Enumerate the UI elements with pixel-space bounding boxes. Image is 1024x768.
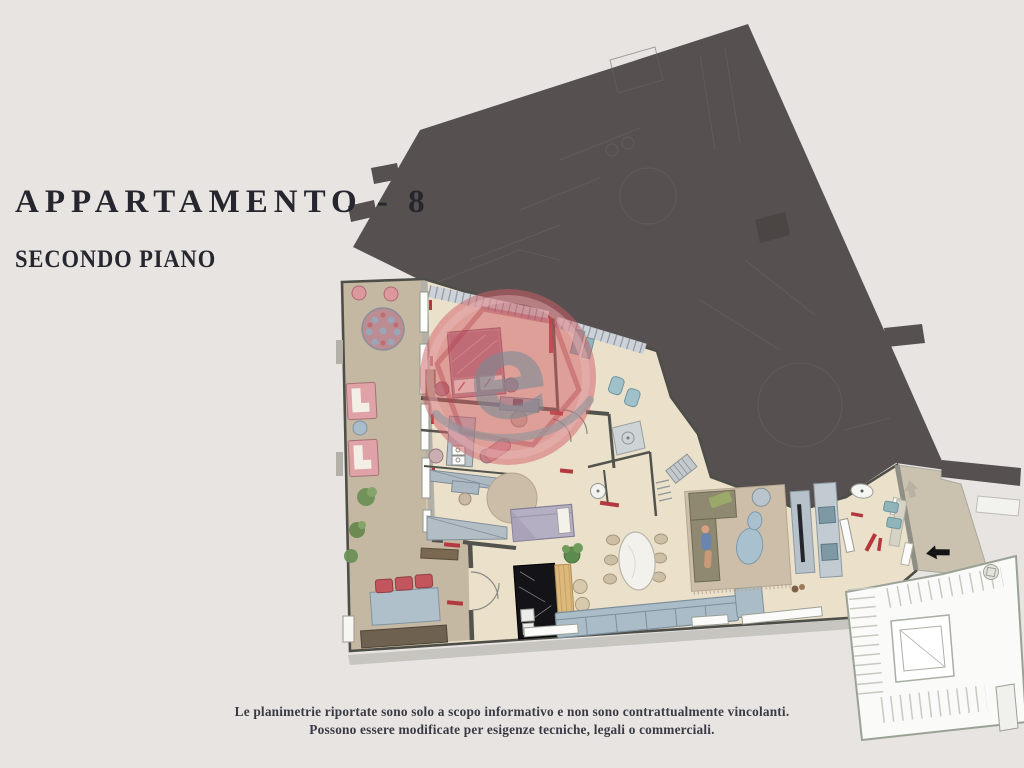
wall-pier — [336, 340, 343, 364]
plan-subtitle: SECONDO PIANO — [15, 246, 216, 274]
floor-plan-drawing: e — [0, 0, 1024, 768]
disclaimer-line-2: Possono essere modificate per esigenze t… — [0, 721, 1024, 739]
red-chair — [375, 579, 393, 593]
side-table — [353, 421, 367, 435]
pet-bowl — [792, 586, 799, 593]
floor-plan-page: APPARTAMENTO - 8 SECONDO PIANO — [0, 0, 1024, 768]
single-bed — [511, 504, 575, 541]
corner-pillar — [343, 616, 354, 642]
desk-chair — [459, 493, 471, 505]
red-chair — [395, 576, 413, 590]
balcony-tab — [884, 324, 925, 347]
desk — [451, 481, 479, 495]
exterior-ledge — [976, 496, 1020, 516]
plan-title: APPARTAMENTO - 8 — [15, 184, 431, 221]
rug-group — [685, 485, 792, 594]
plan-header: APPARTAMENTO - 8 SECONDO PIANO — [15, 184, 431, 274]
disclaimer: Le planimetrie riportate sono solo a sco… — [0, 703, 1024, 738]
sideboard — [421, 548, 458, 560]
wall-pier — [336, 452, 343, 476]
red-chair — [415, 574, 433, 588]
dryer — [452, 456, 465, 465]
outdoor-dining-set — [369, 574, 440, 626]
pet-bowl — [799, 584, 805, 590]
chair — [883, 501, 899, 513]
disclaimer-line-1: Le planimetrie riportate sono solo a sco… — [0, 703, 1024, 721]
column — [984, 565, 999, 580]
chair — [886, 517, 902, 529]
window — [420, 292, 428, 332]
window — [422, 458, 430, 498]
sink — [521, 609, 535, 622]
stool — [352, 286, 366, 300]
watermark-logo: e — [420, 289, 596, 465]
lounge-chair — [346, 382, 377, 419]
pouf — [429, 449, 443, 463]
bar-stool — [573, 579, 588, 594]
lounge-chair — [348, 439, 379, 476]
stool — [384, 287, 398, 301]
